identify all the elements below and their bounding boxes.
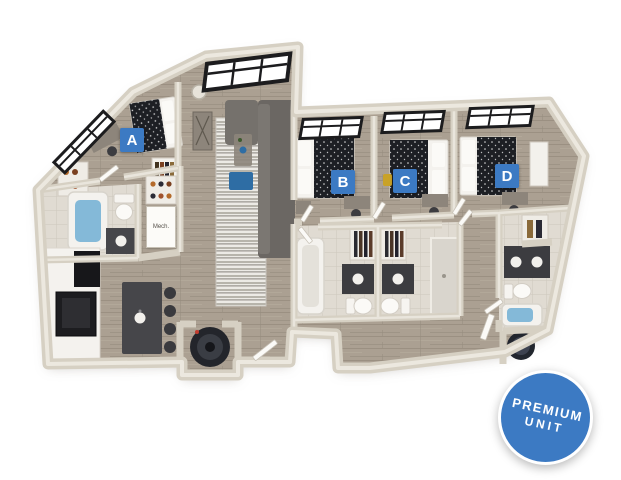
bar-stool [164, 305, 176, 317]
closet-shelf-d [522, 215, 548, 243]
wardrobe-d [530, 142, 548, 186]
bathtub-b [297, 238, 324, 314]
bathtub-a [68, 192, 108, 250]
toilet-a [114, 194, 134, 220]
bar-stool [164, 287, 176, 299]
room-label-d: D [495, 164, 519, 188]
toilet-b [346, 298, 372, 314]
ottoman [229, 172, 253, 190]
duffel-bag [383, 174, 392, 186]
vanity-a [106, 228, 136, 254]
shower-c [431, 238, 458, 314]
premium-unit-badge: PREMIUM UNIT [498, 370, 593, 465]
floor-plan-page: A B C D Mech. PREMIUM UNIT [0, 0, 621, 480]
room-label-c: C [393, 169, 417, 193]
console-table [193, 112, 212, 150]
bar-stool [164, 341, 176, 353]
room-label-a: A [120, 128, 144, 152]
closet-rack-c [381, 228, 406, 260]
window-bedroom-c [380, 110, 446, 134]
window-bedroom-b [298, 116, 364, 140]
vanity-b [342, 264, 374, 294]
vanity-c [382, 264, 414, 294]
closet-rack-b [350, 228, 375, 260]
room-label-b: B [331, 170, 355, 194]
window-bedroom-d [465, 105, 535, 129]
bathtub-d [502, 304, 542, 326]
bar-stool [164, 323, 176, 335]
toilet-d [504, 284, 531, 300]
premium-unit-badge-text: PREMIUM UNIT [507, 395, 584, 441]
laundry-closet-left [190, 327, 230, 367]
double-vanity-d [504, 246, 550, 278]
coffee-table-decor [234, 134, 252, 166]
pantry-shelves [146, 176, 176, 204]
island-sink [135, 313, 146, 324]
toilet-c [381, 298, 410, 314]
mechanical-closet-label: Mech. [146, 206, 176, 248]
